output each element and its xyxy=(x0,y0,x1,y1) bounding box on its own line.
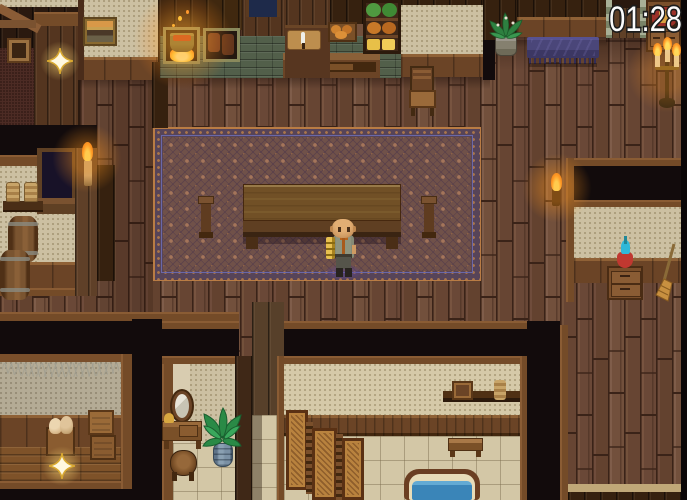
svg-text:01:28: 01:28 xyxy=(609,2,682,38)
